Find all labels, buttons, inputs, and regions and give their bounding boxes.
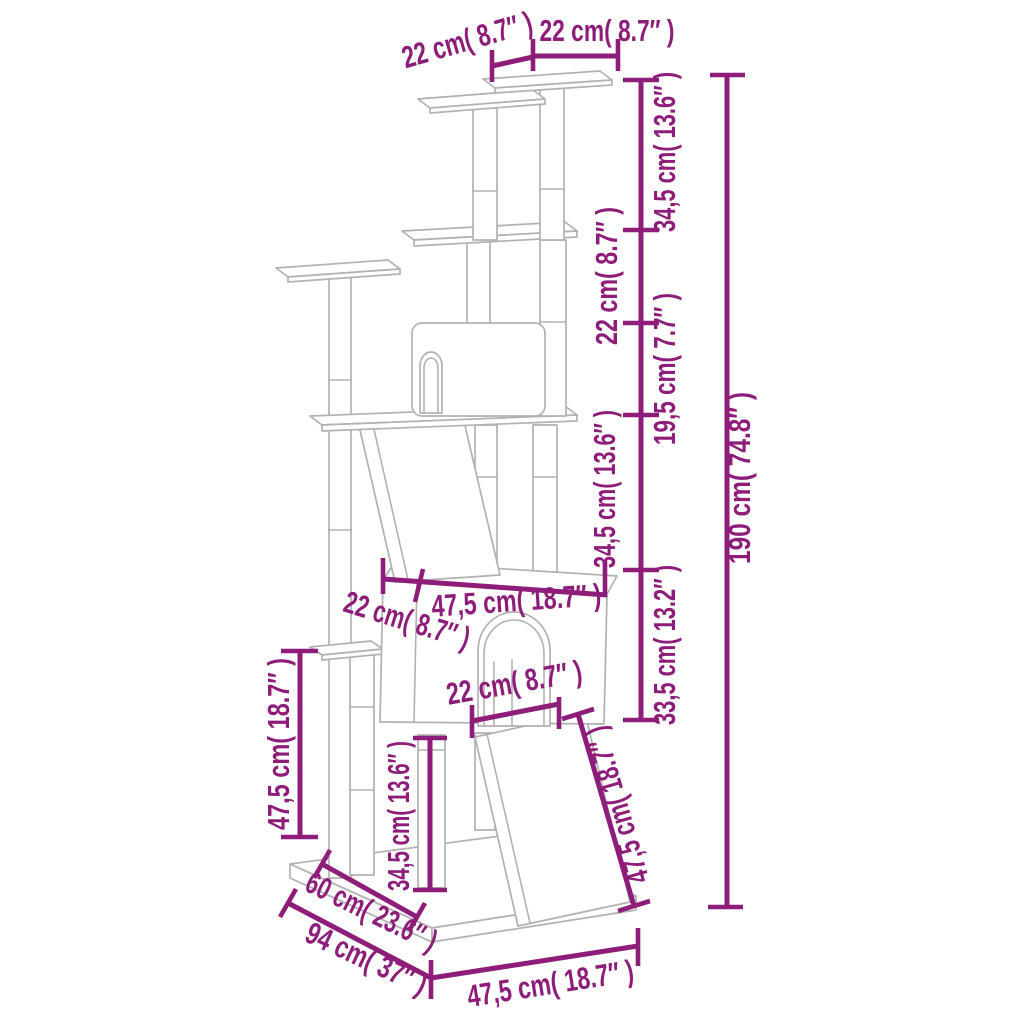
cat-tree-line-art bbox=[276, 71, 636, 942]
label-right-segment-4: 34,5 cm( 13.6″ ) bbox=[587, 410, 622, 568]
mid-post-right bbox=[533, 425, 557, 573]
small-condo bbox=[412, 323, 545, 416]
label-right-segment-5: 33,5 cm( 13.2″ ) bbox=[647, 565, 682, 725]
label-right-segment-3: 19,5 cm( 7.7″ ) bbox=[647, 293, 682, 445]
dimension-diagram: 22 cm( 8.7″ ) 22 cm( 8.7″ ) 34,5 cm( 13.… bbox=[0, 0, 1024, 1024]
top-assembly bbox=[418, 71, 612, 240]
label-total-height: 190 cm( 74.8″ ) bbox=[722, 392, 757, 564]
label-left-post-height: 47,5 cm( 18.7″ ) bbox=[261, 658, 296, 830]
left-tall-post bbox=[329, 277, 351, 878]
top-post-left bbox=[473, 108, 497, 240]
label-right-segment-2: 22 cm( 8.7″ ) bbox=[589, 207, 624, 345]
label-top-platform-depth: 22 cm( 8.7″ ) bbox=[398, 5, 536, 76]
top-post-right bbox=[540, 88, 564, 240]
dim-tick bbox=[280, 889, 296, 917]
diagram-svg: 22 cm( 8.7″ ) 22 cm( 8.7″ ) 34,5 cm( 13.… bbox=[0, 0, 1024, 1024]
left-lower-post bbox=[350, 655, 374, 875]
label-right-segment-1: 34,5 cm( 13.6″ ) bbox=[647, 72, 682, 232]
label-front-post-height: 34,5 cm( 13.6″ ) bbox=[381, 741, 416, 891]
label-base-width: 47,5 cm( 18.7″ ) bbox=[465, 953, 636, 1014]
label-top-platform-width: 22 cm( 8.7″ ) bbox=[540, 13, 675, 48]
dim-top-depth-line bbox=[492, 57, 533, 66]
